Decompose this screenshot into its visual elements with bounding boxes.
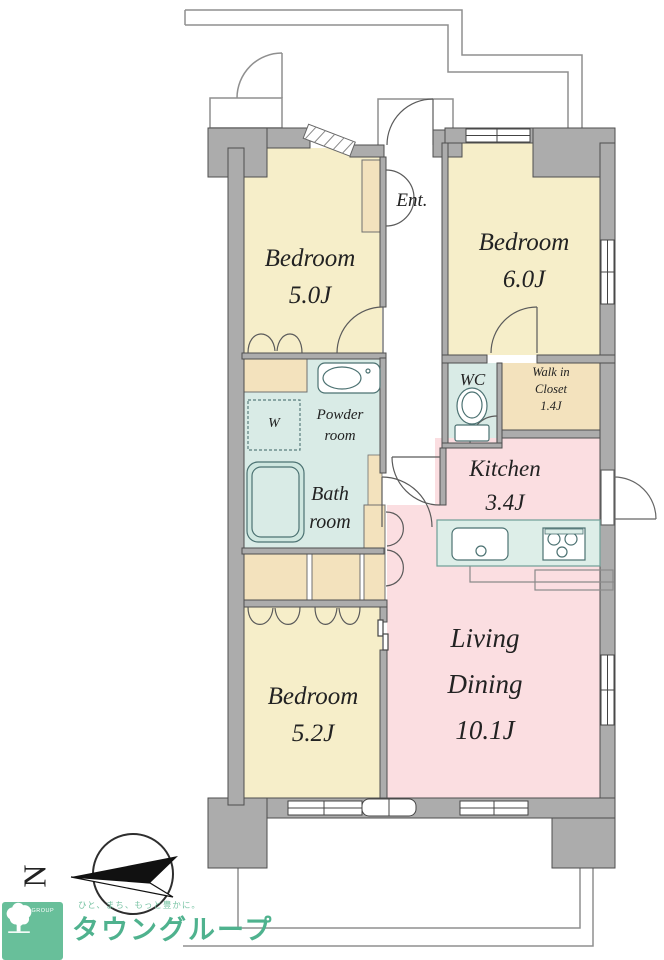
window-right-lower-icon [601, 655, 614, 725]
compass-north-label: N [16, 864, 52, 887]
floorplan-page: N Bedroom 5.0J Bedroom 6.0J Ent. WC Walk… [0, 0, 664, 960]
window-right-upper-icon [601, 240, 614, 304]
storage2-area [312, 554, 360, 602]
living-dining-label: Living Dining 10.1J [390, 615, 580, 753]
walk-in-closet-label: Walk in Closet 1.4J [502, 364, 600, 415]
bedroom3-name: Bedroom [244, 678, 382, 715]
stove-icon [543, 528, 585, 560]
bedroom1-closet-area [244, 358, 307, 392]
bedroom2-name: Bedroom [448, 224, 600, 261]
bedroom1-label: Bedroom 5.0J [240, 240, 380, 314]
bedroom3-size: 5.2J [244, 715, 382, 752]
bedroom1-size: 5.0J [240, 277, 380, 314]
tree-icon [2, 902, 36, 936]
balcony-door-icon [362, 799, 416, 816]
entry-door-icon [387, 99, 433, 145]
vanity-sink-icon [318, 363, 380, 393]
window-bottom-right-icon [460, 801, 528, 815]
window-top-icon [466, 129, 530, 142]
town-group-logo: TOWN GROUP [2, 902, 63, 960]
neighbor-porch [210, 98, 282, 128]
bedroom2-label: Bedroom 6.0J [448, 224, 600, 298]
window-bottom-left-icon [288, 801, 362, 815]
neighbor-door-arc [237, 53, 282, 98]
bedroom2-size: 6.0J [448, 261, 600, 298]
kitchen-label: Kitchen 3.4J [420, 452, 590, 520]
brand-name: タウングループ [72, 908, 273, 947]
washer-label: W [248, 416, 300, 432]
toilet-icon [455, 388, 489, 441]
kitchen-size: 3.4J [420, 486, 590, 520]
kitchen-service-door-icon [601, 470, 656, 525]
balcony-outline-inner [238, 868, 580, 928]
kitchen-sink-icon [452, 528, 508, 560]
bedroom1-name: Bedroom [240, 240, 380, 277]
kitchen-name: Kitchen [420, 452, 590, 486]
bathroom-label: Bath room [292, 480, 368, 536]
bedroom3-label: Bedroom 5.2J [244, 678, 382, 752]
powder-room-label: Powder room [300, 405, 380, 447]
entrance-label: Ent. [384, 190, 440, 212]
storage1-area [244, 554, 307, 602]
wc-label: WC [448, 370, 497, 390]
